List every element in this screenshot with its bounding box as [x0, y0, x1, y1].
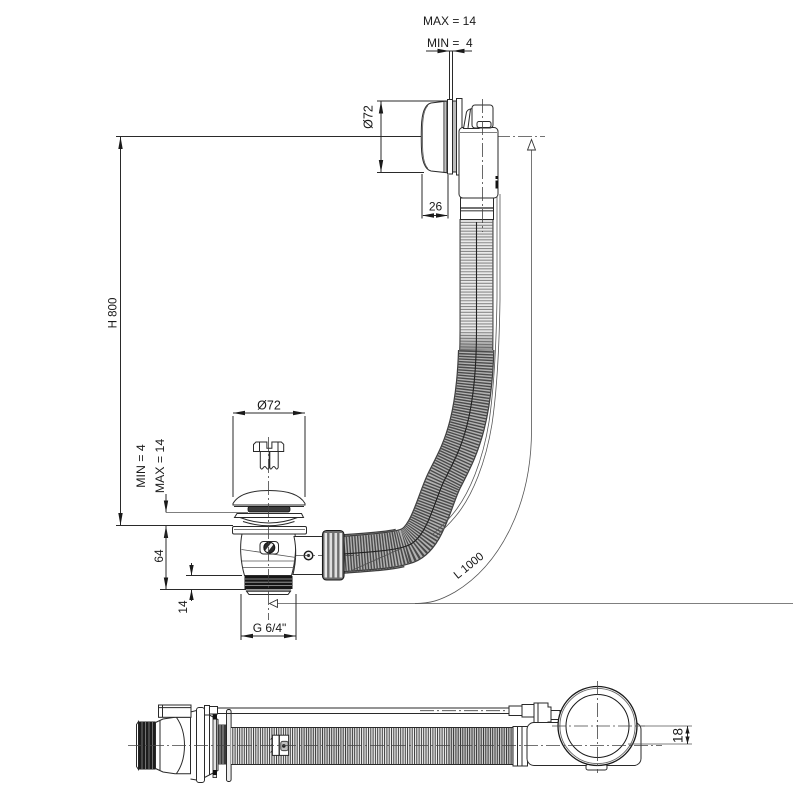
- svg-text:MAX = 14: MAX = 14: [153, 439, 167, 494]
- svg-text:26: 26: [429, 200, 443, 214]
- svg-text:14: 14: [176, 600, 190, 614]
- svg-text:Ø72: Ø72: [257, 399, 281, 413]
- svg-text:18: 18: [671, 728, 686, 743]
- svg-text:64: 64: [152, 549, 166, 563]
- svg-text:MIN = 4: MIN = 4: [427, 36, 473, 50]
- svg-text:Ø72: Ø72: [362, 105, 376, 129]
- svg-text:MIN = 4: MIN = 4: [134, 444, 148, 488]
- svg-text:MAX = 14: MAX = 14: [423, 14, 476, 28]
- svg-text:H 800: H 800: [108, 298, 120, 329]
- svg-text:G 6/4": G 6/4": [253, 621, 287, 635]
